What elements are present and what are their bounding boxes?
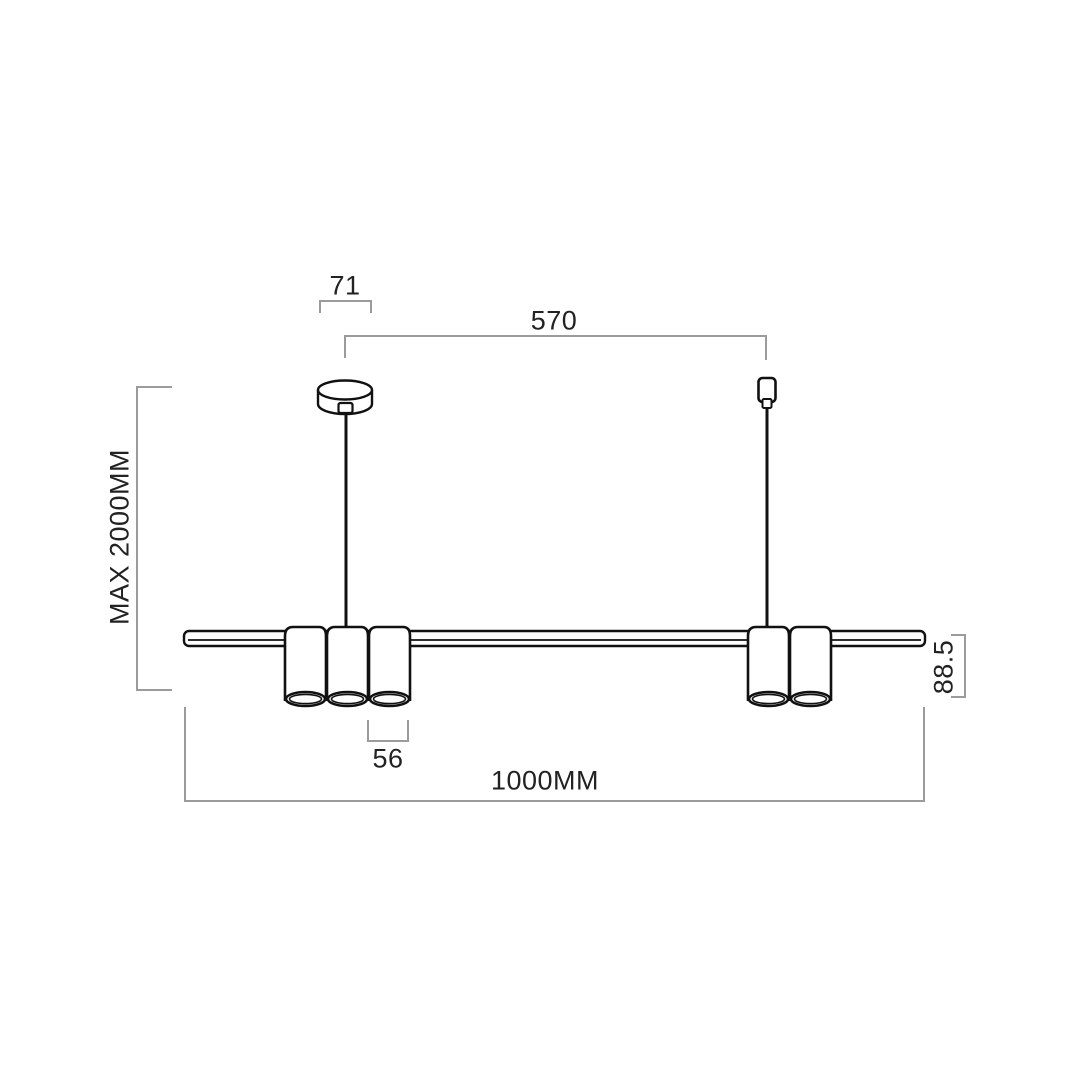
lamp-shade-cylinder [285, 627, 326, 701]
dimension-line-max-height [137, 387, 172, 690]
cable-gripper [759, 378, 776, 408]
shade-inner-rim [332, 694, 364, 703]
lamp-shade-cylinder [790, 627, 831, 701]
dimension-label-suspension-spacing: 570 [531, 308, 578, 335]
shade-group-left [285, 627, 410, 706]
dimension-line-canopy-width [320, 301, 371, 313]
shade-inner-rim [795, 694, 827, 703]
dimension-lines [137, 301, 965, 801]
dimension-drawing-canvas: 71 570 MAX 2000MM 56 1000MM 88.5 [0, 0, 1080, 1080]
canopy-cable-grip [339, 403, 353, 413]
lamp-shade-cylinder [327, 627, 368, 701]
dimension-label-shade-diameter: 56 [372, 746, 403, 773]
pendant-fixture [184, 378, 925, 706]
dimension-label-max-height: MAX 2000MM [107, 449, 134, 625]
gripper-nut [763, 399, 772, 408]
shade-inner-rim [374, 694, 406, 703]
dimension-label-canopy-width: 71 [329, 273, 360, 300]
fixture-line-art [0, 0, 1080, 1080]
ceiling-canopy [318, 381, 372, 415]
shade-group-right [748, 627, 831, 706]
shade-inner-rim [290, 694, 322, 703]
lamp-shade-cylinder [748, 627, 789, 701]
dimension-line-suspension-spacing [345, 336, 766, 360]
dimension-label-fixture-length: 1000MM [491, 768, 599, 795]
dimension-line-shade-diameter [368, 720, 408, 741]
lamp-shade-cylinder [369, 627, 410, 701]
shade-inner-rim [753, 694, 785, 703]
dimension-label-fixture-height: 88.5 [931, 640, 958, 695]
